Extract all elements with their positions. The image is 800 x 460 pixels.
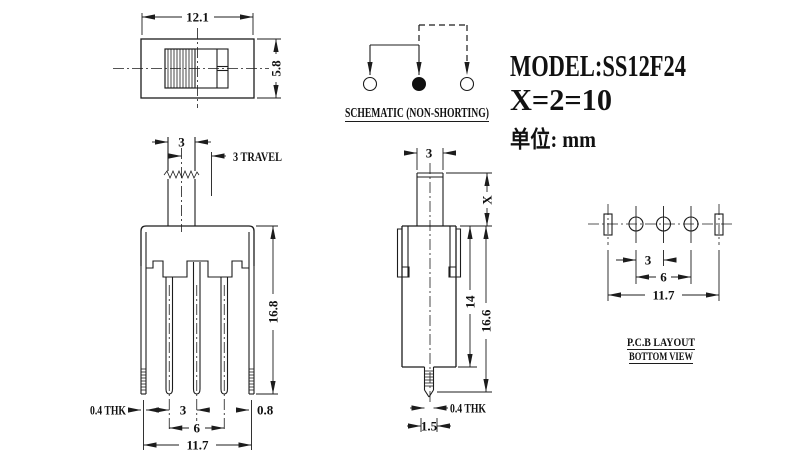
- dim-side-thk: 0.4 THK: [450, 401, 487, 416]
- contact-right: [461, 78, 474, 91]
- dim-pcb-total-width: 11.7: [652, 288, 675, 303]
- mount-pin-left: [141, 266, 146, 394]
- dim-travel: 3 TRAVEL: [233, 149, 282, 164]
- mount-clip-right: [449, 229, 461, 277]
- pcb-label-line2: BOTTOM VIEW: [629, 349, 693, 363]
- dim-front-knob-width: 3: [178, 135, 185, 150]
- dim-front-thk: 0.4 THK: [90, 403, 127, 418]
- dim-side-knob-width: 3: [426, 146, 433, 161]
- side-view: 3 X: [398, 146, 495, 434]
- body-front-outline: [141, 226, 254, 266]
- title-block: MODEL:SS12F24 X=2=10 单位: mm: [510, 48, 686, 152]
- dim-side-total-height: 16.6: [479, 309, 494, 332]
- schematic: SCHEMATIC (NON-SHORTING): [345, 25, 489, 122]
- drawing-sheet: 12.1 5.8 3 3 TRAVEL: [0, 0, 800, 460]
- mount-pin-right: [249, 266, 254, 394]
- dim-pcb-pitch: 3: [645, 253, 652, 268]
- dim-top-height: 5.8: [269, 60, 284, 77]
- knob-side: [417, 173, 443, 226]
- dim-front-span: 6: [194, 421, 201, 436]
- contact-common: [413, 78, 426, 91]
- dim-pcb-span: 6: [660, 270, 667, 285]
- mount-clip-left: [398, 229, 410, 277]
- contact-left: [364, 78, 377, 91]
- schematic-label: SCHEMATIC (NON-SHORTING): [345, 105, 489, 120]
- dim-front-pitch: 3: [180, 403, 187, 418]
- pcb-layout: 3 6 11.7 P.C.B LAYOUT BOTTOM VIEW: [588, 204, 734, 364]
- dim-front-total-width: 11.7: [186, 438, 209, 453]
- dim-top-width: 12.1: [186, 10, 209, 25]
- dim-side-pin-width: 1.5: [421, 419, 438, 434]
- dim-front-pin-width: 0.8: [257, 403, 274, 418]
- unit-note: 单位: mm: [510, 126, 596, 152]
- front-view: 3 3 TRAVEL: [90, 135, 282, 453]
- body-side-outline: [402, 226, 456, 367]
- dim-front-height: 16.8: [266, 300, 281, 323]
- dim-side-x: X: [480, 195, 495, 205]
- pcb-label-line1: P.C.B LAYOUT: [627, 335, 695, 349]
- pin-side: [425, 367, 434, 397]
- model-number: MODEL:SS12F24: [510, 48, 686, 83]
- top-view: 12.1 5.8: [113, 10, 284, 109]
- technical-drawing: 12.1 5.8 3 3 TRAVEL: [0, 0, 800, 460]
- dim-side-body-height: 14: [463, 295, 478, 309]
- terminals-front: [166, 262, 228, 430]
- x-spec-note: X=2=10: [510, 82, 612, 117]
- body-bottom-profile: [146, 261, 249, 277]
